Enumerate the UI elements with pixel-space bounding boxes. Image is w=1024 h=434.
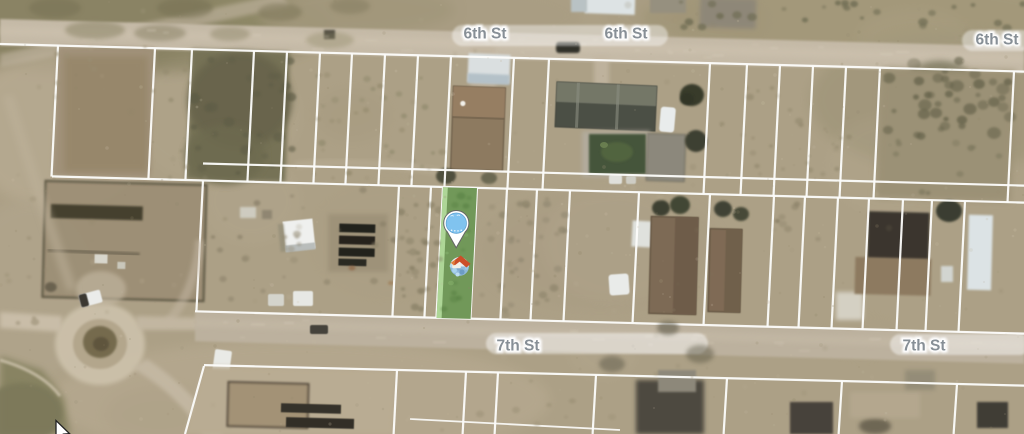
svg-text:6th St: 6th St — [975, 32, 1018, 49]
svg-text:7th St: 7th St — [902, 338, 945, 355]
svg-text:6th St: 6th St — [604, 26, 647, 43]
svg-text:7th St: 7th St — [496, 338, 539, 355]
svg-text:6th St: 6th St — [463, 26, 506, 43]
